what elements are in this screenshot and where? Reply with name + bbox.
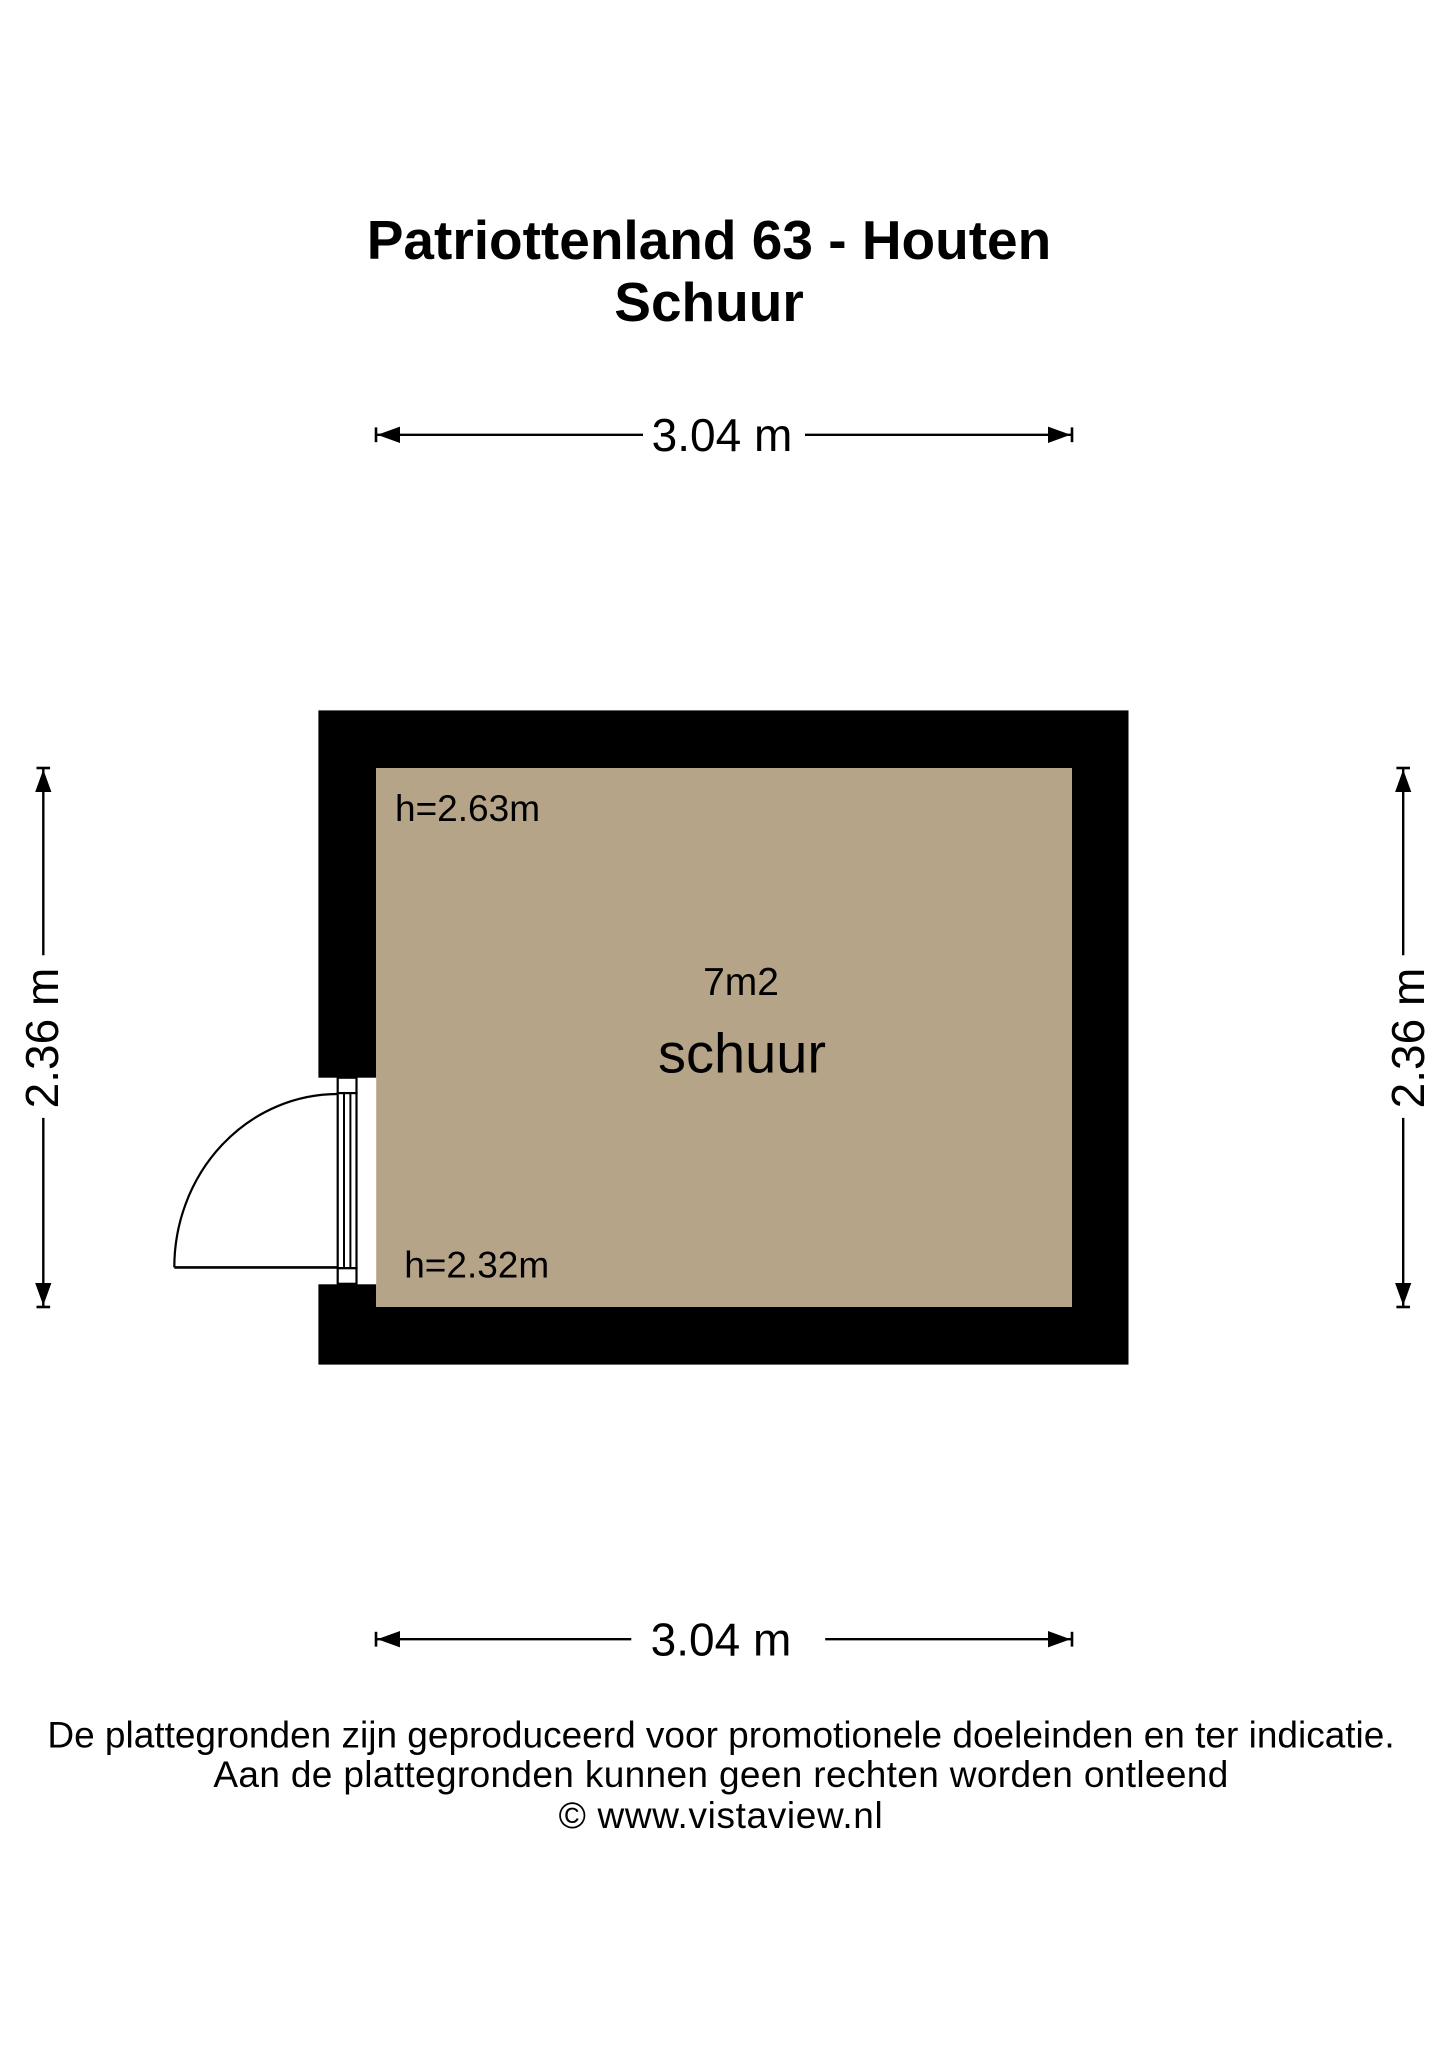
svg-text:h=2.63m: h=2.63m	[395, 788, 540, 829]
svg-text:Schuur: Schuur	[614, 271, 803, 333]
svg-text:© www.vistaview.nl: © www.vistaview.nl	[559, 1795, 884, 1836]
svg-text:Aan de plattegronden kunnen ge: Aan de plattegronden kunnen geen rechten…	[213, 1754, 1228, 1795]
svg-text:3.04 m: 3.04 m	[651, 1613, 792, 1665]
svg-text:schuur: schuur	[658, 1022, 826, 1085]
svg-text:h=2.32m: h=2.32m	[404, 1245, 549, 1286]
svg-text:3.04 m: 3.04 m	[652, 409, 793, 461]
svg-text:2.36 m: 2.36 m	[1382, 968, 1434, 1109]
svg-text:2.36 m: 2.36 m	[16, 968, 68, 1109]
svg-text:7m2: 7m2	[703, 961, 779, 1004]
svg-text:Patriottenland 63 - Houten: Patriottenland 63 - Houten	[367, 209, 1052, 271]
svg-text:De plattegronden zijn geproduc: De plattegronden zijn geproduceerd voor …	[47, 1715, 1394, 1756]
